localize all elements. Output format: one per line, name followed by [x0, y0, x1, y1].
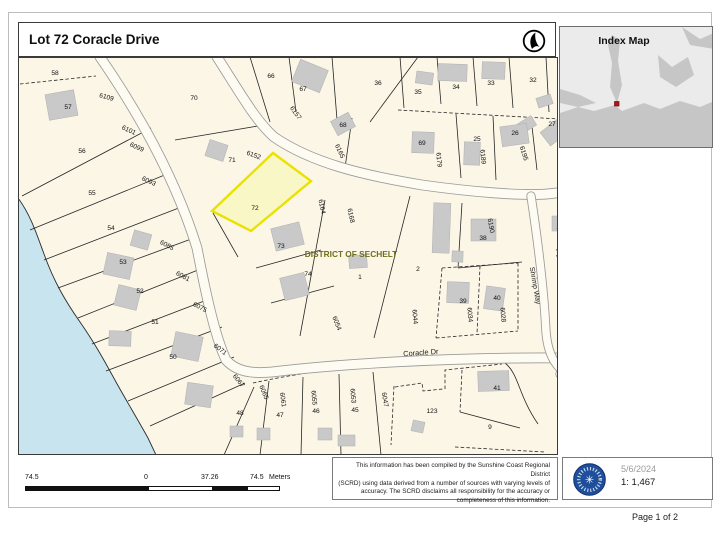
building-footprint — [230, 426, 243, 437]
map-label: 1 — [358, 274, 362, 281]
map-label: 54 — [107, 225, 115, 232]
scale-bar-label: 0 — [144, 474, 148, 481]
map-label: 74 — [304, 271, 312, 278]
map-label: 6053 — [348, 388, 356, 404]
map-label: 35 — [414, 89, 422, 96]
map-label: 36 — [374, 80, 382, 87]
map-label: 73 — [277, 243, 285, 250]
building-footprint — [318, 428, 332, 440]
building-footprint — [338, 435, 355, 446]
map-label: 40 — [493, 295, 501, 302]
map-label: 39 — [459, 298, 467, 305]
index-map-title: Index Map — [560, 35, 688, 47]
scale-bar-label: 37.26 — [201, 474, 219, 481]
scale-bar-segment — [25, 486, 148, 491]
building-footprint — [482, 62, 506, 80]
parcel-map-graphic: 5857610970666761573635343332272661952561… — [19, 58, 557, 454]
map-label: 9 — [488, 424, 492, 431]
map-label: 67 — [299, 86, 307, 93]
map-label: 6055 — [309, 390, 317, 406]
map-label: 47 — [276, 412, 284, 419]
building-footprint — [452, 251, 463, 262]
disclaimer-line: completeness of this information. — [337, 497, 550, 506]
building-footprint — [109, 331, 132, 347]
map-label: 41 — [493, 385, 501, 392]
building-footprint — [438, 63, 468, 81]
disclaimer-line: This information has been compiled by th… — [337, 462, 550, 480]
map-label: 123 — [426, 408, 437, 415]
scale-bar-label: 74.5 — [25, 474, 39, 481]
building-footprint — [432, 203, 451, 254]
map-label: 56 — [78, 148, 86, 155]
map-label: 69 — [418, 140, 426, 147]
disclaimer-box: This information has been compiled by th… — [332, 457, 558, 500]
map-label: 6179 — [434, 152, 442, 168]
map-label: 58 — [51, 70, 59, 77]
map-label: 6189 — [478, 149, 486, 165]
disclaimer-line: accuracy. The SCRD disclaims all respons… — [337, 488, 550, 497]
map-label: 27 — [548, 121, 556, 128]
map-label: 26 — [511, 130, 519, 137]
map-label: 2 — [416, 266, 420, 273]
map-scale: 1: 1,467 — [621, 477, 655, 488]
north-arrow-icon — [521, 28, 547, 59]
map-label: 24 — [556, 224, 557, 231]
map-label: DISTRICT OF SECHELT — [305, 249, 398, 259]
map-label: 71 — [228, 157, 236, 164]
map-label: 25 — [473, 136, 481, 143]
map-label: 45 — [351, 407, 359, 414]
scale-bar-label: 74.5 — [250, 474, 264, 481]
map-label: 66 — [267, 73, 275, 80]
page-number: Page 1 of 2 — [600, 512, 710, 522]
building-footprint — [411, 420, 425, 433]
map-label: 52 — [136, 288, 144, 295]
map-label: 50 — [169, 354, 177, 361]
map-label: 38 — [479, 235, 487, 242]
logo-box: ✳ 5/6/2024 1: 1,467 — [562, 457, 713, 500]
scale-bar-segment — [247, 486, 280, 491]
map-label: 55 — [88, 190, 96, 197]
index-map-panel: Index Map — [559, 26, 713, 148]
map-document-page: Lot 72 Coracle Drive Index Map 585761097… — [0, 0, 720, 544]
map-label: 6028 — [498, 307, 506, 323]
map-label: 48 — [236, 410, 244, 417]
map-label: 6044 — [410, 309, 418, 325]
map-label: 70 — [190, 95, 198, 102]
building-footprint — [185, 382, 214, 407]
svg-text:✳: ✳ — [585, 474, 594, 486]
map-label: 72 — [251, 205, 259, 212]
disclaimer-line: (SCRD) using data derived from a number … — [337, 480, 550, 489]
main-map: 5857610970666761573635343332272661952561… — [18, 57, 558, 455]
map-label: 32 — [529, 77, 537, 84]
map-label: 68 — [339, 122, 347, 129]
scrd-logo-icon: ✳ — [571, 461, 608, 503]
map-label: 46 — [312, 408, 320, 415]
map-label: 57 — [64, 104, 72, 111]
building-footprint — [464, 142, 481, 166]
building-footprint — [45, 90, 78, 121]
scale-bar-segment — [213, 486, 247, 491]
scale-bar-segment — [148, 486, 213, 491]
map-label: 6034 — [465, 307, 473, 323]
map-label: 53 — [119, 259, 127, 266]
building-footprint — [257, 428, 270, 440]
map-label: 51 — [151, 319, 159, 326]
map-label: 34 — [452, 84, 460, 91]
scale-bar-label: Meters — [269, 474, 290, 481]
building-footprint — [415, 71, 434, 85]
location-marker — [615, 102, 620, 107]
map-label: 33 — [487, 80, 495, 87]
map-date: 5/6/2024 — [621, 464, 656, 474]
scale-bar: 74.5037.2674.5Meters — [0, 0, 330, 60]
